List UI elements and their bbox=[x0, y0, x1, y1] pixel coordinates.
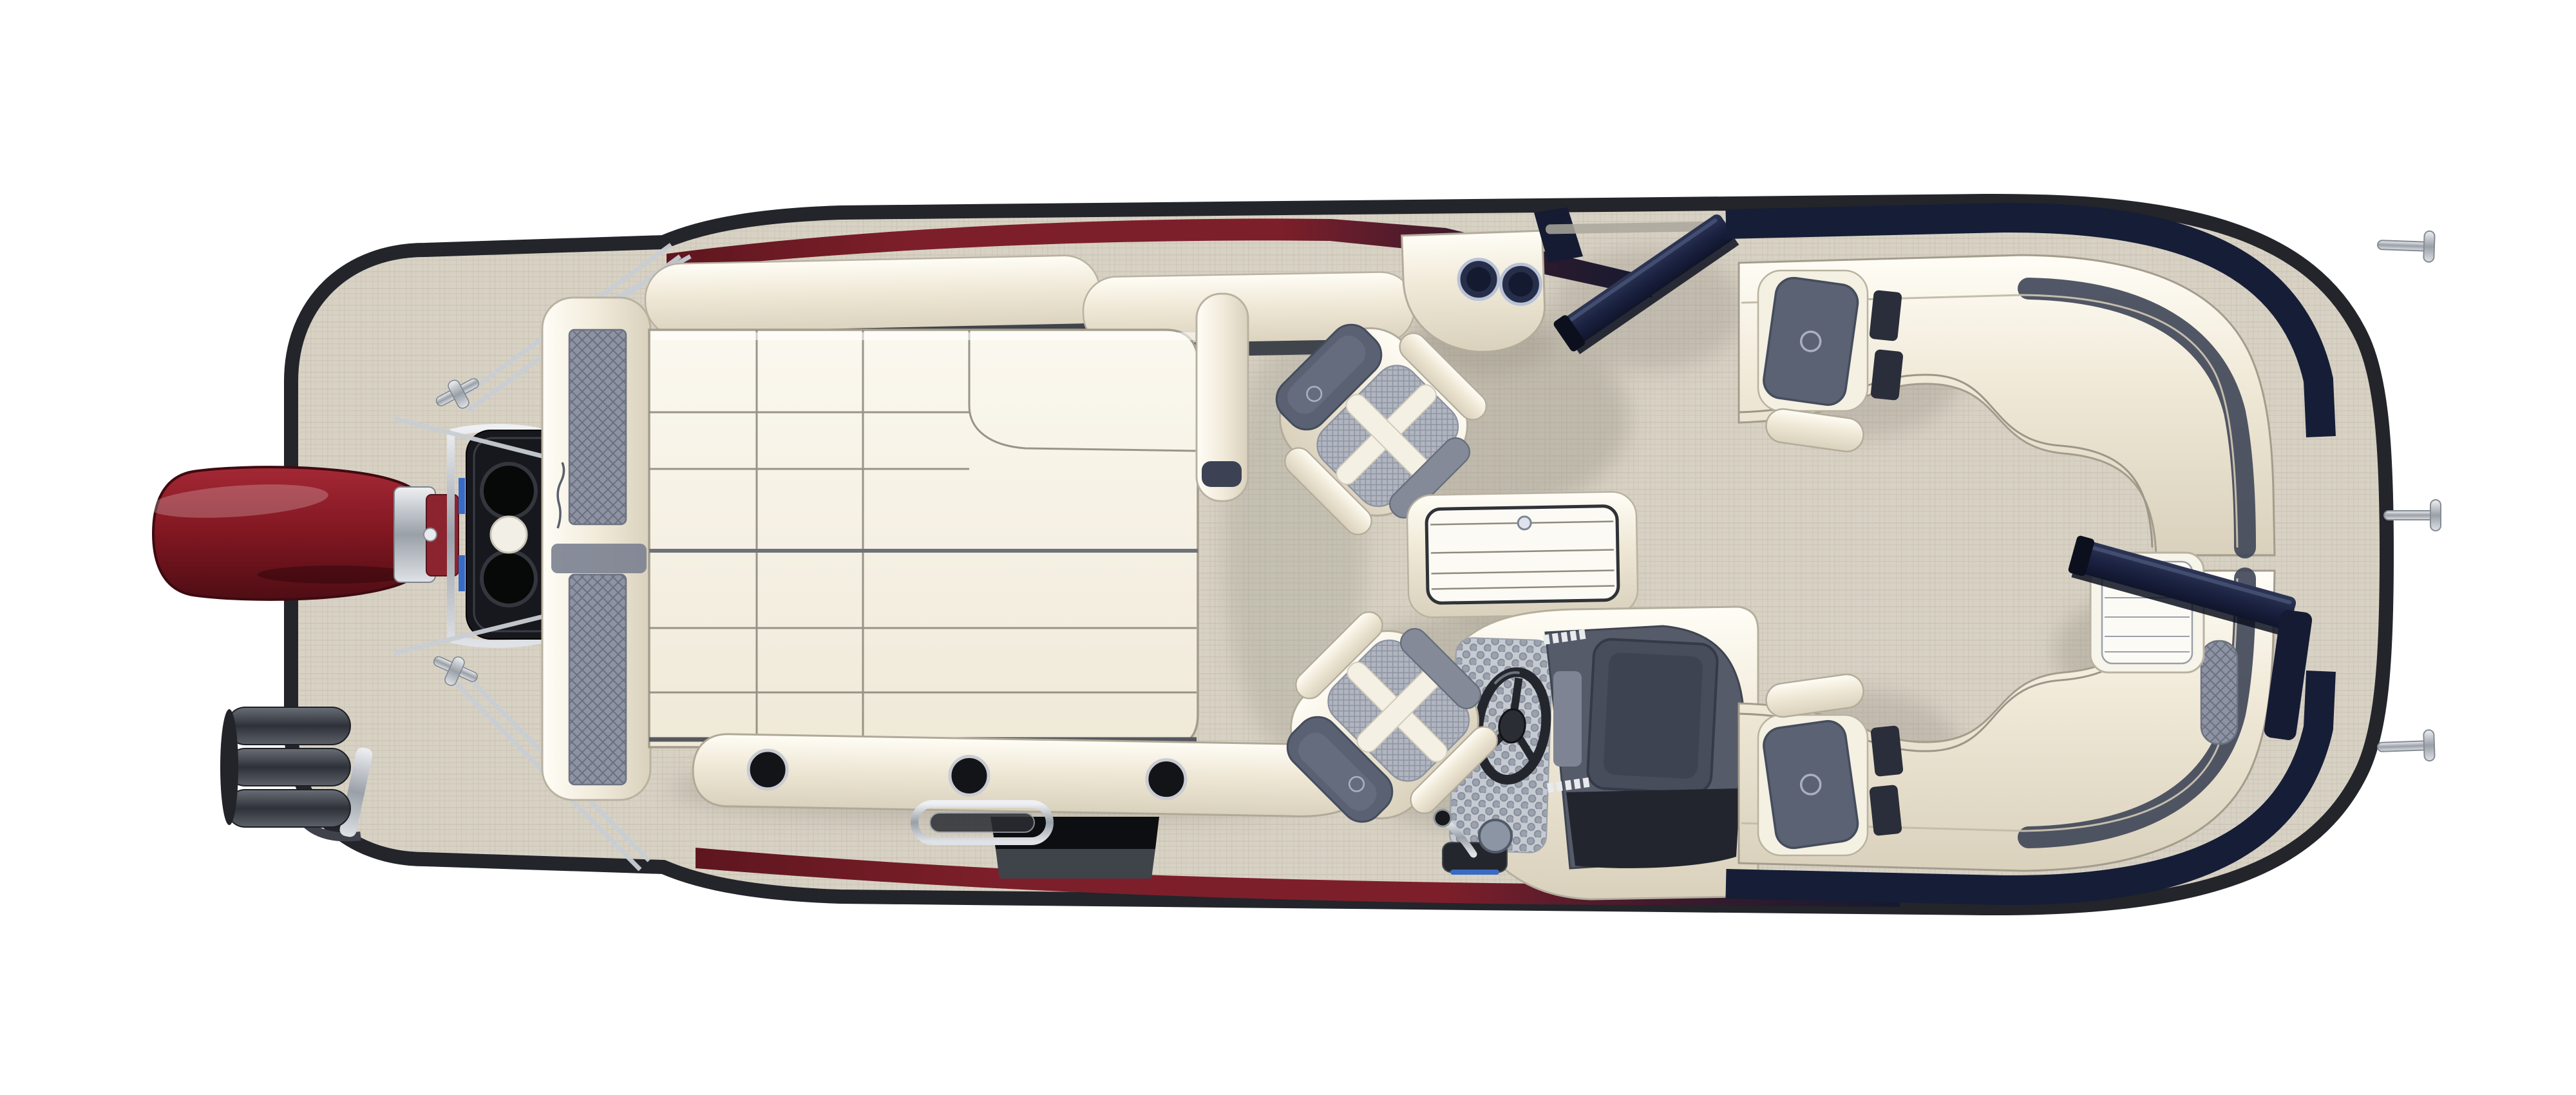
lounge-cushions bbox=[649, 330, 1198, 747]
exhaust-port bbox=[482, 551, 536, 605]
outboard-motor bbox=[147, 467, 459, 600]
cupholder bbox=[748, 750, 788, 789]
helm-dashboard bbox=[1543, 626, 1744, 868]
cupholder bbox=[1146, 759, 1186, 799]
boat-floorplan bbox=[0, 0, 2576, 1095]
cupholder bbox=[949, 756, 989, 795]
chair-pedestal bbox=[1479, 820, 1511, 852]
cocktail-table bbox=[1406, 491, 1638, 618]
bow-headrest bbox=[1761, 276, 1860, 407]
exhaust-port bbox=[482, 464, 536, 518]
lounge-armrest bbox=[1197, 294, 1248, 501]
table-latch bbox=[1518, 517, 1531, 529]
bow-headrest bbox=[1761, 719, 1860, 850]
stern-seatback bbox=[542, 298, 650, 800]
bow-corner-pad bbox=[2201, 641, 2237, 744]
